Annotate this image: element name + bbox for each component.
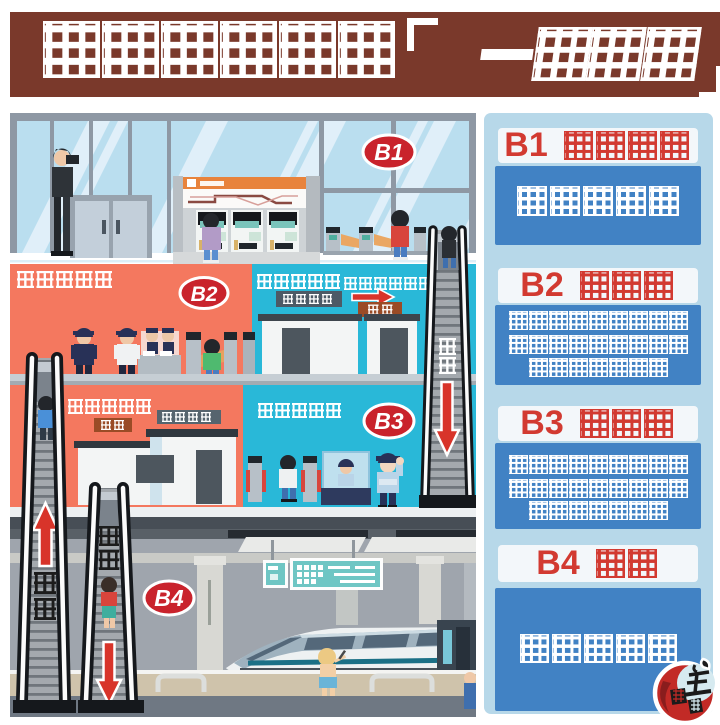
svg-text:B2: B2 bbox=[191, 283, 218, 306]
svg-text:B1: B1 bbox=[374, 139, 403, 165]
svg-text:B4: B4 bbox=[154, 585, 184, 611]
svg-text:B3: B3 bbox=[374, 408, 404, 434]
